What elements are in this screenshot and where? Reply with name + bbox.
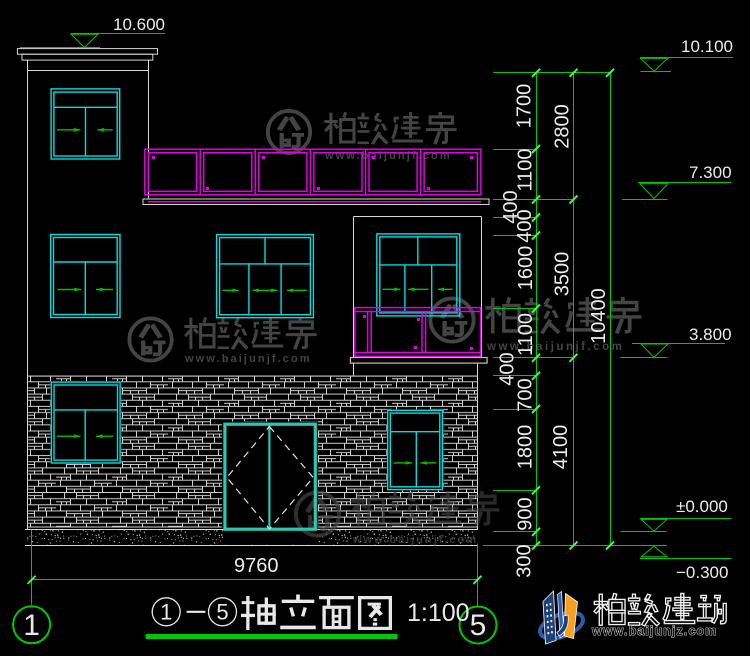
svg-text:1100: 1100: [515, 313, 537, 356]
svg-text:1700: 1700: [514, 84, 536, 129]
svg-text:www.baijunjf.com: www.baijunjf.com: [324, 150, 452, 162]
svg-text:5: 5: [216, 600, 228, 625]
svg-text:3.800: 3.800: [689, 325, 732, 344]
svg-text:700: 700: [515, 378, 537, 411]
svg-text:10.600: 10.600: [113, 15, 165, 34]
svg-text:±0.000: ±0.000: [676, 497, 728, 516]
svg-text:1: 1: [160, 600, 172, 625]
svg-text:−0.300: −0.300: [676, 563, 728, 582]
svg-text:9760: 9760: [234, 555, 279, 577]
svg-text:www.baijunjf.com: www.baijunjf.com: [352, 534, 478, 546]
svg-text:300: 300: [514, 544, 536, 577]
svg-text:1: 1: [23, 609, 40, 642]
svg-text:10.100: 10.100: [681, 37, 733, 56]
svg-text:1100: 1100: [515, 148, 537, 191]
svg-text:900: 900: [515, 497, 537, 530]
svg-text:3500: 3500: [552, 252, 574, 297]
svg-text:www.baijunjf.com: www.baijunjf.com: [184, 353, 312, 365]
svg-text:2800: 2800: [552, 104, 574, 149]
svg-text:1800: 1800: [515, 425, 537, 470]
svg-text:www.baijunjz.com: www.baijunjz.com: [591, 624, 717, 638]
svg-text:5: 5: [470, 609, 487, 642]
svg-text:1600: 1600: [515, 246, 537, 291]
svg-text:400: 400: [514, 209, 536, 242]
svg-text:4100: 4100: [550, 425, 572, 470]
svg-text:10400: 10400: [588, 288, 610, 344]
svg-text:1:100: 1:100: [407, 599, 470, 627]
svg-text:7.300: 7.300: [689, 163, 732, 182]
